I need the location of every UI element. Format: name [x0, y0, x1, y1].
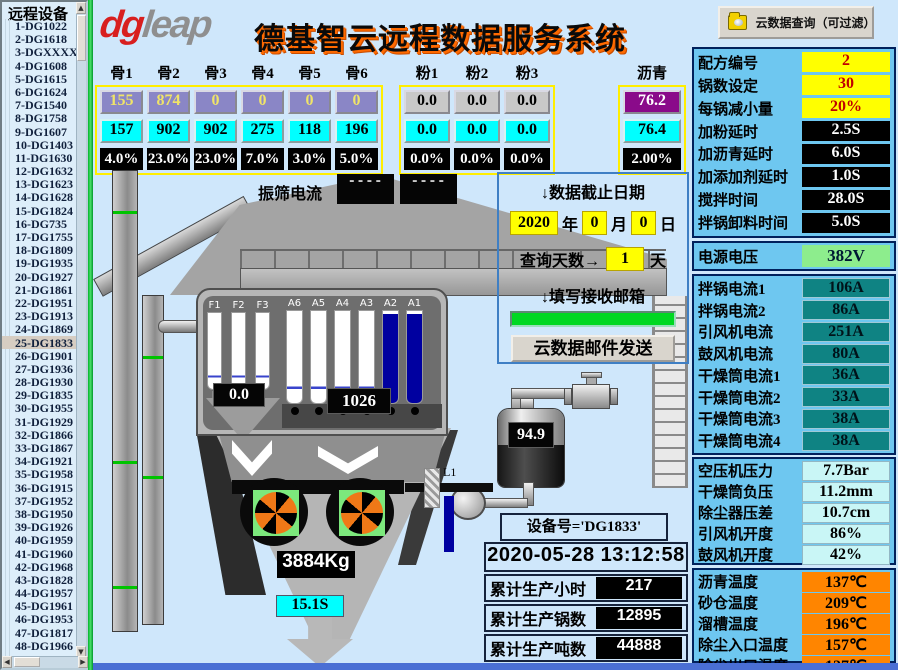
mixer-paddle-right	[339, 490, 385, 536]
panel-row: 鼓风机电流80A	[694, 343, 894, 364]
material-headers: 骨1骨2骨3骨4骨5骨6	[95, 62, 383, 83]
year-unit-label: 年	[562, 211, 578, 235]
paddle-icon	[255, 492, 297, 534]
panel-row: 干燥筒电流338A	[694, 408, 894, 429]
material-values-box: 0.00.00.00.00.00.00.0%0.0%0.0%	[399, 85, 555, 175]
material-set-value: 0.0	[504, 90, 550, 114]
panel-row: 鼓风机开度42%	[694, 544, 894, 565]
panel-label: 拌锅电流1	[698, 278, 766, 299]
panel-label: 引风机开度	[698, 523, 773, 544]
month-unit-label: 月	[611, 211, 627, 235]
stat-value: 12895	[596, 607, 682, 629]
panel-label: 加粉延时	[698, 121, 758, 142]
material-row-actual: 0.00.00.0	[404, 119, 550, 143]
panel-row: 干燥筒电流438A	[694, 430, 894, 451]
material-row-percent: 2.00%	[623, 148, 681, 170]
panel-value: 2	[802, 52, 890, 72]
material-set-value: 155	[100, 90, 143, 114]
panel-row: 干燥筒电流136A	[694, 365, 894, 386]
material-row-percent: 4.0%23.0%23.0%7.0%3.0%5.0%	[100, 148, 378, 170]
panel-label: 锅数设定	[698, 75, 758, 96]
level-mark	[113, 586, 137, 589]
material-row-set: 76.2	[623, 90, 681, 114]
panel-row: 搅拌时间28.0S	[694, 189, 894, 210]
silo-gate-icon	[315, 407, 323, 415]
vibrating-screen-current-display: ----	[400, 174, 457, 204]
panel-label: 沥青温度	[698, 571, 758, 592]
material-set-value: 0	[335, 90, 378, 114]
valve-flange	[564, 388, 572, 405]
material-actual-value: 0.0	[454, 119, 500, 143]
material-row-set: 1558740000	[100, 90, 378, 114]
material-values-box: 15587400001579029022751181964.0%23.0%23.…	[95, 85, 383, 175]
device-id-box: 设备号='DG1833'	[500, 513, 668, 541]
elevator-tower-1	[112, 170, 138, 632]
bitumen-weigh-tank	[497, 408, 565, 488]
pressures-section: 空压机压力7.7Bar干燥筒负压11.2mm除尘器压差10.7cm引风机开度86…	[692, 457, 896, 565]
panel-row: 空压机压力7.7Bar	[694, 460, 894, 481]
material-column-header: 骨1	[100, 62, 143, 83]
silo-label: A5	[310, 298, 327, 310]
currents-section: 拌锅电流1106A拌锅电流286A引风机电流251A鼓风机电流80A干燥筒电流1…	[692, 274, 896, 455]
silo-label: A4	[334, 298, 351, 310]
material-group-bitumen: 沥青76.276.42.00%	[618, 62, 686, 175]
silo-gate-icon	[411, 407, 419, 415]
panel-label: 拌锅电流2	[698, 300, 766, 321]
data-query-panel: ↓数据截止日期 2020 年 0 月 0 日 查询天数→ 1 天 ↓填写接收邮箱…	[497, 172, 689, 364]
date-row: 2020 年 0 月 0 日	[510, 211, 676, 235]
panel-value: 137℃	[802, 572, 890, 592]
filler-weight-display: 0.0	[213, 383, 265, 407]
silo-body	[255, 312, 270, 390]
material-actual-value: 902	[194, 119, 237, 143]
query-title: ↓数据截止日期	[541, 179, 645, 203]
discharge-time-display: 15.1S	[276, 595, 344, 617]
tank-base	[498, 445, 564, 487]
material-actual-value: 0.0	[504, 119, 550, 143]
panel-value: 38A	[802, 431, 890, 451]
material-column-header: 粉2	[454, 62, 500, 83]
material-actual-value: 902	[147, 119, 190, 143]
material-percent-value: 0.0%	[504, 148, 550, 170]
panel-value: 2.5S	[802, 121, 890, 141]
panel-row: 拌锅卸料时间5.0S	[694, 212, 894, 233]
panel-value: 38A	[802, 409, 890, 429]
panel-label: 拌锅卸料时间	[698, 212, 788, 233]
silo-body	[310, 310, 327, 404]
silo-label: A1	[406, 298, 423, 310]
silo-label: F3	[255, 300, 270, 312]
panel-row: 引风机电流251A	[694, 321, 894, 342]
material-actual-value: 76.4	[623, 119, 681, 143]
silo-body	[231, 312, 246, 390]
panel-value: 86A	[802, 300, 890, 320]
panel-value: 36A	[802, 365, 890, 385]
panel-label: 溜槽温度	[698, 613, 758, 634]
days-label: 查询天数→	[520, 247, 600, 271]
filler-silo: F1	[207, 300, 222, 390]
vibrating-screen-label: 振筛电流	[258, 180, 322, 204]
material-row-percent: 0.0%0.0%0.0%	[404, 148, 550, 170]
filler-silo: F2	[231, 300, 246, 390]
silo-body	[207, 312, 222, 390]
stat-label: 累计生产吨数	[490, 636, 586, 660]
voltage-section: 电源电压382V	[692, 241, 896, 271]
panel-label: 干燥筒电流1	[698, 365, 781, 386]
silo-label: A2	[382, 298, 399, 310]
stat-label: 累计生产小时	[490, 576, 586, 600]
silo-label: F1	[207, 300, 222, 312]
pipe-support	[424, 468, 440, 508]
panel-value: 382V	[802, 245, 890, 267]
send-email-button[interactable]: 云数据邮件发送	[511, 335, 675, 362]
panel-row: 每锅减小量20%	[694, 98, 894, 119]
panel-row: 干燥筒电流233A	[694, 387, 894, 408]
bitumen-valve	[572, 384, 610, 409]
panel-label: 加添加剂延时	[698, 166, 788, 187]
spray-pipe	[405, 483, 493, 492]
panel-value: 80A	[802, 344, 890, 364]
panel-label: 干燥筒电流3	[698, 408, 781, 429]
panel-label: 除尘入口温度	[698, 634, 788, 655]
temperatures-section: 沥青温度137℃砂仓温度209℃溜槽温度196℃除尘入口温度157℃除尘出口温度…	[692, 568, 896, 663]
panel-value: 20%	[802, 98, 890, 118]
panel-row: 配方编号2	[694, 52, 894, 73]
paddle-icon	[341, 492, 383, 534]
panel-value: 30	[802, 75, 890, 95]
material-percent-value: 2.00%	[623, 148, 681, 170]
material-column-header: 粉1	[404, 62, 450, 83]
elevator-tower-2	[142, 295, 164, 625]
panel-label: 引风机电流	[698, 321, 773, 342]
panel-value: 28.0S	[802, 190, 890, 210]
recipe-section: 配方编号2锅数设定30每锅减小量20%加粉延时2.5S加沥青延时6.0S加添加剂…	[692, 47, 896, 238]
material-set-value: 874	[147, 90, 190, 114]
level-mark	[143, 356, 163, 359]
material-actual-value: 0.0	[404, 119, 450, 143]
panel-value: 196℃	[802, 614, 890, 634]
production-stat-row: 累计生产锅数12895	[484, 604, 688, 632]
panel-row: 溜槽温度196℃	[694, 613, 894, 634]
production-stat-row: 累计生产吨数44888	[484, 634, 688, 662]
panel-label: 电源电压	[698, 246, 758, 267]
material-group-powder: 粉1粉2粉30.00.00.00.00.00.00.0%0.0%0.0%	[399, 62, 555, 175]
panel-value: 6.0S	[802, 144, 890, 164]
silo-gate-icon	[291, 407, 299, 415]
panel-row: 锅数设定30	[694, 75, 894, 96]
vibrating-screen-current-display: ----	[337, 174, 394, 204]
day-unit-label: 日	[660, 211, 676, 235]
material-set-value: 0	[194, 90, 237, 114]
month-input[interactable]: 0	[582, 211, 607, 235]
material-column-header: 沥青	[623, 62, 681, 83]
stat-value: 217	[596, 577, 682, 599]
material-actual-value: 118	[288, 119, 331, 143]
filler-silo: F3	[255, 300, 270, 390]
bitumen-weight-display: 94.9	[508, 422, 554, 448]
material-percent-value: 23.0%	[194, 148, 237, 170]
silo-label: A3	[358, 298, 375, 310]
panel-label: 干燥筒电流4	[698, 430, 781, 451]
panel-row: 除尘器压差10.7cm	[694, 502, 894, 523]
panel-value: 251A	[802, 322, 890, 342]
material-set-value: 0.0	[404, 90, 450, 114]
panel-label: 加沥青延时	[698, 143, 773, 164]
material-percent-value: 0.0%	[454, 148, 500, 170]
material-set-value: 76.2	[623, 90, 681, 114]
panel-value: 209℃	[802, 593, 890, 613]
valve-stem	[586, 377, 597, 385]
valve-flange	[610, 388, 618, 405]
material-percent-value: 5.0%	[335, 148, 378, 170]
production-stat-row: 累计生产小时217	[484, 574, 688, 602]
panel-row: 沥青温度137℃	[694, 571, 894, 592]
material-percent-value: 0.0%	[404, 148, 450, 170]
material-column-header: 骨3	[194, 62, 237, 83]
level-mark	[143, 476, 163, 479]
right-panel: 配方编号2锅数设定30每锅减小量20%加粉延时2.5S加沥青延时6.0S加添加剂…	[690, 43, 898, 665]
panel-value: 33A	[802, 387, 890, 407]
material-row-actual: 76.4	[623, 119, 681, 143]
panel-value: 106A	[802, 278, 890, 298]
day-input[interactable]: 0	[631, 211, 656, 235]
panel-label: 空压机压力	[698, 460, 773, 481]
valve-handle	[581, 372, 602, 378]
aggregate-silo: A6	[286, 298, 303, 415]
days-row: 查询天数→ 1 天	[520, 247, 666, 271]
material-actual-value: 275	[241, 119, 284, 143]
panel-row: 加添加剂延时1.0S	[694, 166, 894, 187]
aggregate-silo: A1	[406, 298, 423, 415]
production-stats: 累计生产小时217累计生产锅数12895累计生产吨数44888	[484, 574, 688, 662]
panel-value: 157℃	[802, 635, 890, 655]
silo-label: F2	[231, 300, 246, 312]
panel-label: 鼓风机电流	[698, 343, 773, 364]
material-actual-value: 157	[100, 119, 143, 143]
mixer-paddle-left	[253, 490, 299, 536]
panel-value: 10.7cm	[802, 503, 890, 523]
panel-label: 干燥筒电流2	[698, 387, 781, 408]
bottom-border	[93, 663, 898, 670]
material-headers: 沥青	[618, 62, 686, 83]
material-headers: 粉1粉2粉3	[399, 62, 555, 83]
email-input[interactable]	[510, 311, 676, 327]
stat-value: 44888	[596, 637, 682, 659]
material-row-actual: 157902902275118196	[100, 119, 378, 143]
panel-label: 搅拌时间	[698, 189, 758, 210]
panel-value: 42%	[802, 545, 890, 565]
panel-row: 干燥筒负压11.2mm	[694, 481, 894, 502]
panel-row: 加粉延时2.5S	[694, 121, 894, 142]
material-column-header: 骨4	[241, 62, 284, 83]
material-row-set: 0.00.00.0	[404, 90, 550, 114]
panel-row: 拌锅电流1106A	[694, 278, 894, 299]
panel-label: 砂仓温度	[698, 592, 758, 613]
level-indicator-bar	[444, 496, 454, 552]
filler-feed-pipe	[158, 320, 200, 333]
silo-body	[286, 310, 303, 404]
panel-row: 除尘入口温度157℃	[694, 634, 894, 655]
year-input[interactable]: 2020	[510, 211, 558, 235]
material-percent-value: 4.0%	[100, 148, 143, 170]
panel-row: 加沥青延时6.0S	[694, 143, 894, 164]
material-values-box: 76.276.42.00%	[618, 85, 686, 175]
material-percent-value: 7.0%	[241, 148, 284, 170]
panel-label: 每锅减小量	[698, 98, 773, 119]
material-set-value: 0	[241, 90, 284, 114]
panel-row: 拌锅电流286A	[694, 300, 894, 321]
silo-label: A6	[286, 298, 303, 310]
hmi-screen: 远程设备 1-DG10222-DG16183-DGXXXX4-DG16085-D…	[0, 0, 898, 670]
panel-value: 11.2mm	[802, 482, 890, 502]
panel-row: 砂仓温度209℃	[694, 592, 894, 613]
panel-value: 86%	[802, 524, 890, 544]
stat-label: 累计生产锅数	[490, 606, 586, 630]
aggregate-weight-display: 1026	[327, 388, 391, 414]
panel-value: 5.0S	[802, 213, 890, 233]
material-set-value: 0	[288, 90, 331, 114]
panel-value: 1.0S	[802, 167, 890, 187]
panel-label: 配方编号	[698, 52, 758, 73]
days-unit-label: 天	[650, 247, 666, 271]
days-input[interactable]: 1	[606, 247, 644, 271]
material-column-header: 骨6	[335, 62, 378, 83]
material-percent-value: 23.0%	[147, 148, 190, 170]
silo-body	[406, 310, 423, 404]
material-column-header: 粉3	[504, 62, 550, 83]
panel-label: 干燥筒负压	[698, 481, 773, 502]
material-set-value: 0.0	[454, 90, 500, 114]
panel-label: 除尘器压差	[698, 502, 773, 523]
aggregate-silo: A5	[310, 298, 327, 415]
level-mark	[113, 461, 137, 464]
datetime-display: 2020-05-28 13:12:58	[484, 542, 688, 572]
email-label: ↓填写接收邮箱	[541, 283, 645, 307]
panel-row: 电源电压382V	[694, 245, 894, 267]
material-actual-value: 196	[335, 119, 378, 143]
panel-label: 鼓风机开度	[698, 544, 773, 565]
level-mark	[113, 211, 137, 214]
material-percent-value: 3.0%	[288, 148, 331, 170]
material-group-aggregate: 骨1骨2骨3骨4骨5骨61558740000157902902275118196…	[95, 62, 383, 175]
material-column-header: 骨5	[288, 62, 331, 83]
mix-weight-display: 3884Kg	[277, 551, 355, 578]
panel-value: 7.7Bar	[802, 461, 890, 481]
pipe-label: L1	[443, 465, 456, 480]
material-column-header: 骨2	[147, 62, 190, 83]
panel-row: 引风机开度86%	[694, 523, 894, 544]
